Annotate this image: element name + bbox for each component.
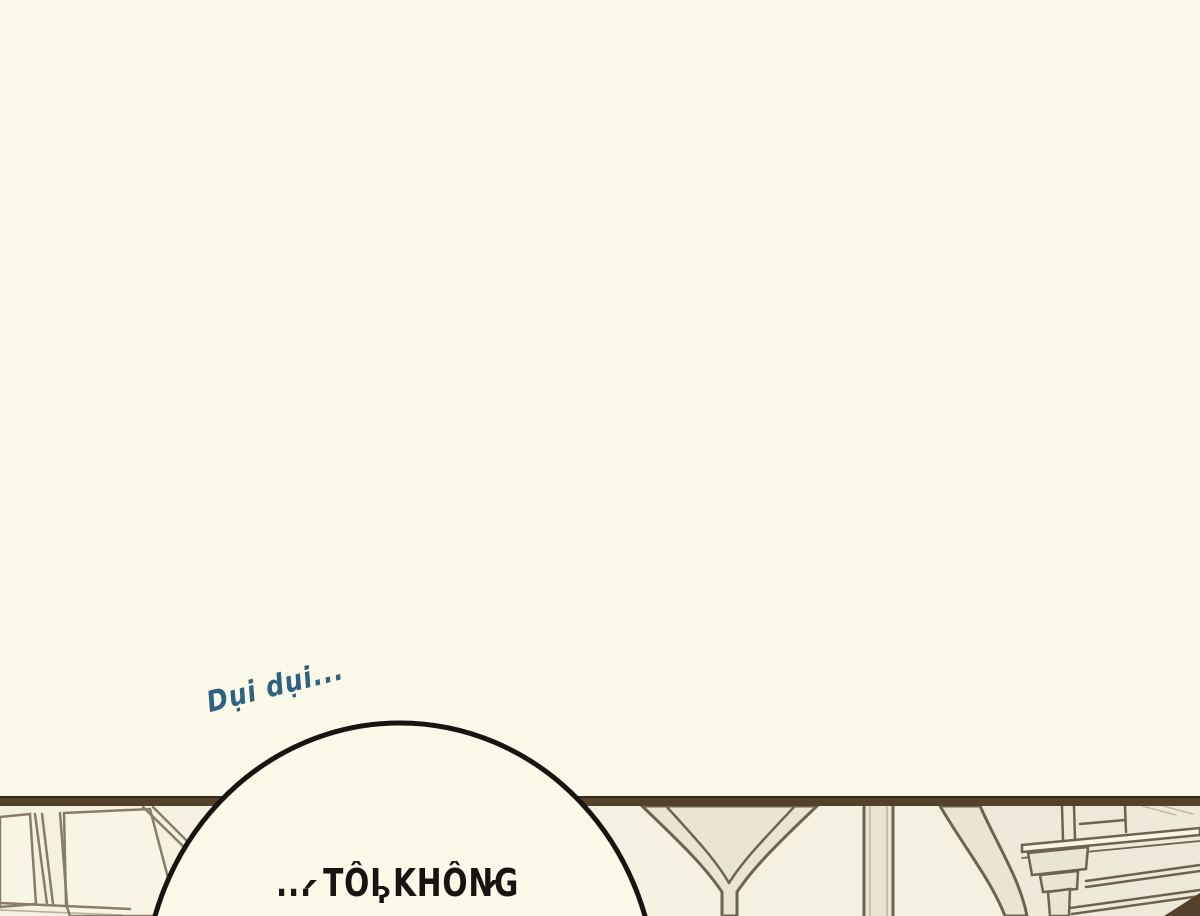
comic-panel: Dụi dụi... ... TÔI KHÔNG ´ ˀ ´ bbox=[0, 0, 1200, 916]
sfx-text: Dụi dụi... bbox=[203, 652, 347, 719]
clipped-accent-mark: ˀ bbox=[376, 899, 389, 907]
arcade-column bbox=[864, 806, 894, 916]
background-architecture bbox=[0, 806, 1200, 916]
speech-bubble-text: ... TÔI KHÔNG bbox=[224, 861, 571, 905]
speech-bubble bbox=[0, 0, 1200, 916]
clipped-accent-mark: ´ bbox=[478, 897, 501, 906]
clipped-accent-mark: ´ bbox=[296, 897, 319, 906]
arcade-artwork bbox=[0, 806, 1200, 916]
